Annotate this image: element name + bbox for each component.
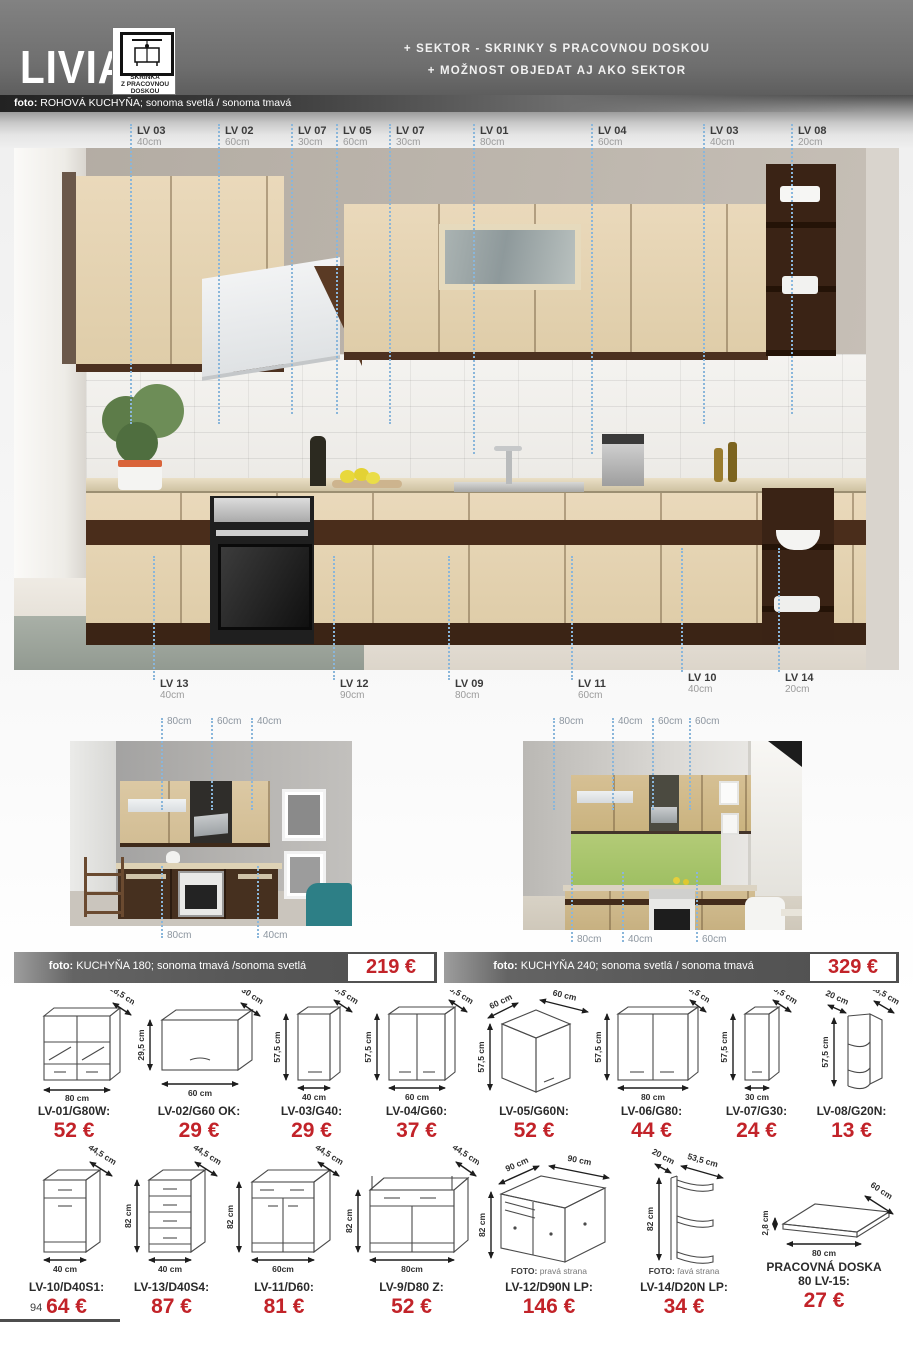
oven — [649, 889, 695, 930]
product-drawing: 82 cm 90 cm 90 cm FOTO: pravá strana — [479, 1146, 619, 1278]
product-drawing: 57,5 cm 28,5 cm 40 cm — [264, 990, 359, 1102]
dim-line — [553, 718, 555, 810]
main-kitchen-photo — [14, 148, 899, 670]
dim-width: 40 cm — [53, 1264, 78, 1274]
dim-depth: 44,5 cm — [192, 1146, 224, 1167]
product-drawing: 2,8 cm 60 cm 80 cm — [749, 1146, 899, 1278]
dim-label: 80cm — [559, 716, 583, 727]
dim-label: 80cm — [167, 930, 191, 941]
dim-depth: 28,5 cm — [768, 990, 800, 1006]
plant-pot-rim — [118, 460, 162, 467]
product-price: 52 € — [474, 1119, 594, 1143]
dim-height: 82 cm — [645, 1207, 655, 1232]
dim-depth: 60 cm — [869, 1180, 895, 1202]
product-lv13: 82 cm 44,5 cm 40 cm LV-13/D40S4: 87 € — [119, 1146, 224, 1319]
dim-height: 2,8 cm — [761, 1211, 770, 1236]
dim-height: 82 cm — [123, 1204, 133, 1229]
set-price: 219 € — [366, 956, 416, 979]
photo-caption-strip: foto: ROHOVÁ KUCHYŇA; sonoma svetlá / so… — [0, 95, 913, 112]
glass-strip — [577, 791, 633, 803]
dim-line — [291, 124, 293, 414]
hood — [194, 813, 228, 837]
dim-label: 60cm — [702, 934, 726, 945]
dim-width: 60 cm — [188, 1088, 213, 1098]
product-drawing: 57,5 cm 28,5 cm 80 cm — [594, 990, 709, 1102]
label-lv01-top: LV 0180cm — [480, 125, 509, 149]
product-name: LV-14/D20N LP: — [619, 1280, 749, 1294]
dim-line — [612, 718, 614, 810]
product-name: LV-07/G30: — [709, 1104, 804, 1118]
dim-line — [622, 872, 624, 942]
coffee-machine-top — [602, 434, 644, 444]
dim-width: 20 cm — [824, 990, 850, 1007]
dim-height: 57,5 cm — [594, 1031, 603, 1063]
plant-pot — [118, 464, 162, 490]
product-name: LV-06/G80: — [594, 1104, 709, 1118]
dim-label: 40cm — [618, 716, 642, 727]
dim-depth: 28,5 cm — [108, 990, 134, 1008]
product-lv12: 82 cm 90 cm 90 cm FOTO: pravá strana LV-… — [479, 1146, 619, 1319]
product-lv06: 57,5 cm 28,5 cm 80 cm LV-06/G80: 44 € — [594, 990, 709, 1143]
dim-height: 29,5 cm — [136, 1029, 146, 1061]
products-row-wall-cabinets: 28,5 cm 80 cm LV-01/G80W: 52 € 29,5 cm — [14, 990, 899, 1143]
product-lv02: 29,5 cm 30 cm 60 cm LV-02/G60 OK: 29 € — [134, 990, 264, 1143]
dim-line — [689, 718, 691, 810]
drawer-front — [126, 874, 166, 879]
base-cabinets — [86, 493, 866, 623]
glass-strip — [128, 799, 186, 812]
dim-height: 82 cm — [225, 1205, 235, 1230]
product-name: LV-9/D80 Z: — [344, 1280, 479, 1294]
dim-depth: 44,5 cm — [87, 1146, 119, 1167]
dim-height: 57,5 cm — [820, 1036, 830, 1068]
worktop-cabinet-icon — [120, 32, 174, 76]
dim-width: 90 cm — [567, 1153, 593, 1167]
label-lv12-bottom: LV 1290cm — [340, 678, 369, 702]
dim-height: 57,5 cm — [272, 1031, 282, 1063]
product-price: 87 € — [119, 1295, 224, 1319]
dim-height: 57,5 cm — [363, 1031, 373, 1063]
catalog-page: foto: ROHOVÁ KUCHYŇA; sonoma svetlá / so… — [0, 0, 913, 1349]
dim-line — [652, 718, 654, 810]
label-lv04-top: LV 0460cm — [598, 125, 627, 149]
badge-line-2: Z PRACOVNOU — [113, 81, 177, 88]
kitchen-240-photo — [523, 741, 802, 930]
product-lv10: 44,5 cm 40 cm LV-10/D40S1: 64 € — [14, 1146, 119, 1319]
product-name: LV-05/G60N: — [474, 1104, 594, 1118]
plinth — [86, 623, 866, 645]
product-lv08: 20 cm 28,5 cm 57,5 cm LV-08/G20N: 13 € — [804, 990, 899, 1143]
dim-line — [153, 556, 155, 680]
product-name: LV-11/D60: — [224, 1280, 344, 1294]
product-price: 52 € — [14, 1119, 134, 1143]
dim-width: 80 cm — [641, 1092, 666, 1102]
dim-line — [130, 124, 132, 424]
oven — [178, 871, 224, 917]
dim-line — [571, 556, 573, 680]
product-drawing: 57,5 cm 28,5 cm 60 cm — [359, 990, 474, 1102]
page-rule — [0, 1319, 120, 1322]
foto-note: FOTO: pravá strana — [479, 1266, 619, 1276]
product-price: 29 € — [264, 1119, 359, 1143]
foto-note: FOTO: ľavá strana — [619, 1266, 749, 1276]
dim-width: 40 cm — [302, 1092, 327, 1102]
product-price: 13 € — [804, 1119, 899, 1143]
lemon — [340, 470, 355, 483]
product-drawing: 82 cm 44,5 cm 60cm — [224, 1146, 344, 1278]
right-wall — [866, 148, 899, 670]
dim-line — [161, 718, 163, 810]
kitchen-240-block: 80cm 40cm 60cm 60cm — [515, 714, 815, 950]
drawer-front — [238, 874, 272, 879]
label-lv08-top: LV 0820cm — [798, 125, 827, 149]
product-price: 146 € — [479, 1295, 619, 1319]
white-chair — [745, 897, 785, 930]
teal-armchair — [306, 883, 352, 926]
cups — [780, 186, 820, 202]
label-lv10-bottom: LV 1040cm — [688, 672, 717, 696]
oil-bottle — [728, 442, 737, 482]
product-price: 37 € — [359, 1119, 474, 1143]
dim-line — [591, 124, 593, 454]
product-lv9: 82 cm 44,5 cm 80cm LV-9/D80 Z: 52 € — [344, 1146, 479, 1319]
dim-line — [681, 548, 683, 672]
fruit — [673, 877, 680, 884]
product-lv11: 82 cm 44,5 cm 60cm LV-11/D60: 81 € — [224, 1146, 344, 1319]
green-backsplash — [571, 829, 721, 887]
product-name: LV-01/G80W: — [14, 1104, 134, 1118]
dim-depth: 44,5 cm — [451, 1146, 479, 1167]
product-drawing: 82 cm 44,5 cm 40 cm — [119, 1146, 224, 1278]
photo-caption-text: ROHOVÁ KUCHYŇA; sonoma svetlá / sonoma t… — [37, 97, 291, 109]
mugs — [782, 276, 818, 294]
dim-line — [336, 124, 338, 414]
dim-depth: 20 cm — [650, 1146, 676, 1166]
dim-width: 80 cm — [812, 1248, 837, 1258]
dim-depth: 28,5 cm — [444, 990, 474, 1006]
dim-width: 80cm — [401, 1264, 423, 1274]
price-box: 219 € — [348, 954, 434, 981]
product-lv03: 57,5 cm 28,5 cm 40 cm LV-03/G40: 29 € — [264, 990, 359, 1143]
base-accent-band — [86, 520, 866, 545]
photo-caption: foto: ROHOVÁ KUCHYŇA; sonoma svetlá / so… — [14, 97, 291, 109]
dim-height: 82 cm — [344, 1209, 354, 1234]
product-lv04: 57,5 cm 28,5 cm 60 cm LV-04/G60: 37 € — [359, 990, 474, 1143]
worktop-cabinet-badge: SKRINKA Z PRACOVNOU DOSKOU — [112, 27, 176, 95]
dim-width: 53,5 cm — [686, 1151, 719, 1169]
dim-line — [251, 718, 253, 810]
dim-depth: 28,5 cm — [870, 990, 899, 1007]
dim-line — [703, 124, 705, 424]
dim-height: 82 cm — [479, 1213, 487, 1238]
glass-door — [439, 224, 581, 290]
banner-text: foto: KUCHYŇA 240; sonoma svetlá / sonom… — [444, 960, 803, 972]
dim-label: 40cm — [263, 930, 287, 941]
oven-control-panel — [214, 498, 310, 522]
faucet — [506, 448, 512, 484]
plant-foliage — [116, 422, 158, 464]
banner-kuchyna-180: foto: KUCHYŇA 180; sonoma tmavá /sonoma … — [14, 952, 437, 983]
page-number: 94 — [30, 1302, 42, 1314]
product-drawing: 82 cm 44,5 cm 80cm — [344, 1146, 479, 1278]
header-taglines: + SEKTOR - SKRINKY S PRACOVNOU DOSKOU + … — [392, 38, 722, 82]
faucet-arm — [494, 446, 522, 451]
table-edge — [781, 909, 802, 916]
hood — [651, 807, 677, 823]
label-lv03b-top: LV 0340cm — [710, 125, 739, 149]
dim-label: 60cm — [658, 716, 682, 727]
dim-height: 57,5 cm — [476, 1041, 486, 1073]
wall-art-1 — [282, 789, 326, 841]
badge-line-1: SKRINKA — [113, 74, 177, 81]
product-name: LV-12/D90N LP: — [479, 1280, 619, 1294]
label-lv14-bottom: LV 1420cm — [785, 672, 814, 696]
upper-left-side-panel — [62, 172, 76, 364]
product-price: 29 € — [134, 1119, 264, 1143]
label-lv03-top: LV 0340cm — [137, 125, 166, 149]
kettle — [166, 851, 180, 863]
dim-line — [218, 124, 220, 424]
dim-line — [473, 124, 475, 454]
dim-width: 40 cm — [158, 1264, 183, 1274]
dim-depth: 90 cm — [504, 1155, 530, 1174]
label-lv02-top: LV 0260cm — [225, 125, 254, 149]
dim-depth: 60 cm — [488, 991, 514, 1011]
badge-caption: SKRINKA Z PRACOVNOU DOSKOU — [113, 74, 177, 95]
label-lv07a-top: LV 0730cm — [298, 125, 327, 149]
product-drawing: 57,5 cm 28,5 cm 30 cm — [709, 990, 804, 1102]
product-name: LV-08/G20N: — [804, 1104, 899, 1118]
dim-line — [571, 872, 573, 942]
tagline-moznost: + MOŽNOST OBJEDAT AJ AKO SEKTOR — [392, 60, 722, 82]
product-name: LV-02/G60 OK: — [134, 1104, 264, 1118]
dim-label: 60cm — [695, 716, 719, 727]
product-lv07: 57,5 cm 28,5 cm 30 cm LV-07/G30: 24 € — [709, 990, 804, 1143]
product-price: 44 € — [594, 1119, 709, 1143]
dim-width: 60 cm — [552, 990, 578, 1003]
dim-width: 30 cm — [745, 1092, 770, 1102]
wall-art-2 — [721, 813, 739, 835]
label-lv09-bottom: LV 0980cm — [455, 678, 484, 702]
product-price: 34 € — [619, 1295, 749, 1319]
lemon — [366, 472, 380, 484]
dim-width: 60cm — [272, 1264, 294, 1274]
product-lv01: 28,5 cm 80 cm LV-01/G80W: 52 € — [14, 990, 134, 1143]
dim-line — [161, 866, 163, 938]
dim-line — [448, 556, 450, 680]
tagline-sektor: + SEKTOR - SKRINKY S PRACOVNOU DOSKOU — [392, 38, 722, 60]
badge-line-3: DOSKOU — [113, 88, 177, 95]
price-box: 329 € — [810, 954, 896, 981]
label-lv05-top: LV 0560cm — [343, 125, 372, 149]
wall-art-1 — [719, 781, 739, 805]
dim-height: 57,5 cm — [719, 1031, 729, 1063]
ladder-shelf — [84, 857, 124, 917]
product-name: LV-04/G60: — [359, 1104, 474, 1118]
label-lv13-bottom: LV 1340cm — [160, 678, 189, 702]
kitchen-180-block: 80cm 60cm 40cm 80cm 40cm — [62, 714, 362, 950]
dim-line — [257, 866, 259, 938]
fruit — [683, 879, 689, 885]
label-lv11-bottom: LV 1160cm — [578, 678, 606, 702]
product-price: 52 € — [344, 1295, 479, 1319]
dim-line — [333, 556, 335, 680]
dim-label: 80cm — [577, 934, 601, 945]
label-lv07b-top: LV 0730cm — [396, 125, 425, 149]
dim-label: 40cm — [257, 716, 281, 727]
dim-label: 80cm — [167, 716, 191, 727]
dim-line — [696, 872, 698, 942]
banner-text: foto: KUCHYŇA 180; sonoma tmavá /sonoma … — [14, 960, 341, 972]
dim-label: 60cm — [217, 716, 241, 727]
product-price: 27 € — [749, 1289, 899, 1313]
wine-bottle — [310, 436, 326, 486]
product-drawing: 57,5 cm 60 cm 60 cm — [474, 990, 594, 1102]
dim-line — [211, 718, 213, 810]
banner-kuchyna-240: foto: KUCHYŇA 240; sonoma svetlá / sonom… — [444, 952, 899, 983]
dim-line — [791, 124, 793, 414]
products-row-base-cabinets: 44,5 cm 40 cm LV-10/D40S1: 64 € — [14, 1146, 899, 1319]
dim-width: 80 cm — [65, 1093, 90, 1102]
product-name: LV-10/D40S1: — [14, 1280, 119, 1294]
product-lv15-worktop: 2,8 cm 60 cm 80 cm PRACOVNÁ DOSKA80 LV-1… — [749, 1146, 899, 1319]
bowl-stack — [774, 596, 820, 612]
oil-bottle — [714, 448, 723, 482]
window — [748, 741, 802, 903]
product-lv05: 57,5 cm 60 cm 60 cm LV-05/G60N: 52 € — [474, 990, 594, 1143]
product-drawing: 20 cm 53,5 cm 82 cm FOTO: ľavá strana — [619, 1146, 749, 1278]
product-price: 24 € — [709, 1119, 804, 1143]
dim-label: 40cm — [628, 934, 652, 945]
oven-handle — [216, 530, 308, 536]
dim-depth: 44,5 cm — [314, 1146, 344, 1167]
product-lv14: 20 cm 53,5 cm 82 cm FOTO: ľavá strana LV… — [619, 1146, 749, 1319]
product-drawing: 20 cm 28,5 cm 57,5 cm — [804, 990, 899, 1102]
end-shelf-unit-base — [762, 488, 834, 644]
product-drawing: 44,5 cm 40 cm — [14, 1146, 119, 1278]
oven-window — [218, 544, 312, 630]
dim-depth: 28,5 cm — [329, 990, 359, 1006]
product-price: 81 € — [224, 1295, 344, 1319]
product-drawing: 28,5 cm 80 cm — [14, 990, 134, 1102]
product-drawing: 29,5 cm 30 cm 60 cm — [134, 990, 264, 1102]
sink — [454, 482, 584, 492]
set-price: 329 € — [828, 956, 878, 979]
dim-width: 60 cm — [405, 1092, 430, 1102]
dim-line — [778, 548, 780, 672]
product-name: LV-13/D40S4: — [119, 1280, 224, 1294]
photo-caption-label: foto: — [14, 97, 37, 109]
dim-line — [389, 124, 391, 424]
product-name: LV-03/G40: — [264, 1104, 359, 1118]
